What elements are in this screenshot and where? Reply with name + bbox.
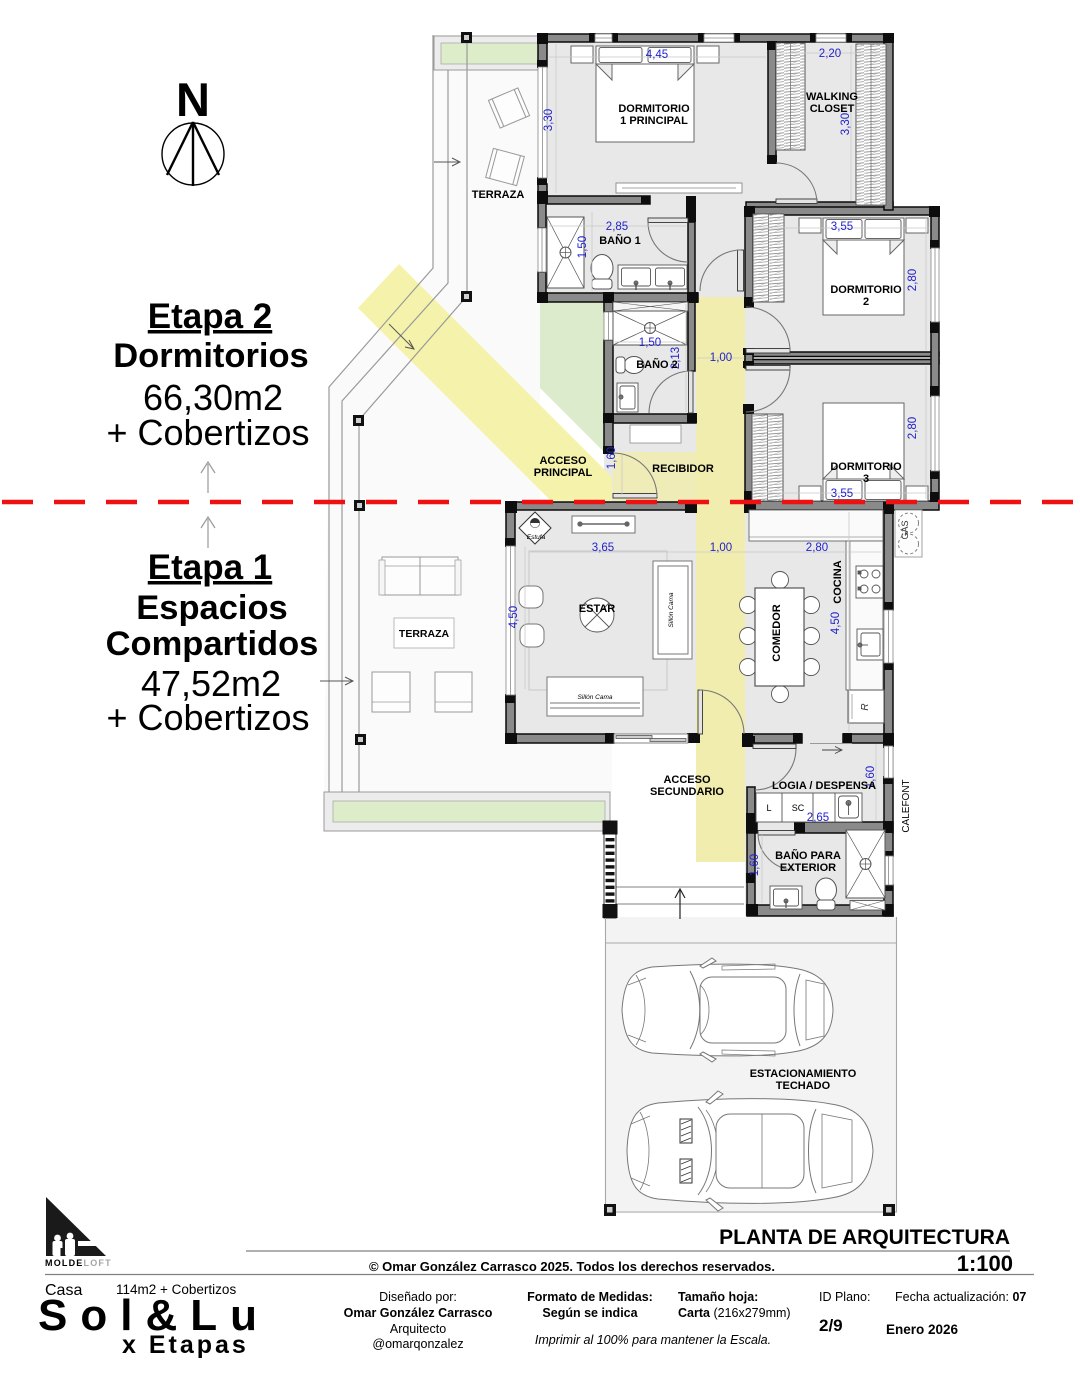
svg-text:1 PRINCIPAL: 1 PRINCIPAL <box>620 115 688 127</box>
svg-text:PRINCIPAL: PRINCIPAL <box>534 467 593 479</box>
svg-text:BAÑO 2: BAÑO 2 <box>636 358 678 371</box>
svg-text:SC: SC <box>792 803 805 813</box>
svg-text:Imprimir al 100% para mantener: Imprimir al 100% para mantener la Escala… <box>535 1333 771 1347</box>
svg-text:1,00: 1,00 <box>710 542 732 554</box>
svg-text:Omar González Carrasco: Omar González Carrasco <box>344 1306 493 1320</box>
svg-text:2,80: 2,80 <box>907 417 919 439</box>
svg-text:ESTAR: ESTAR <box>579 603 616 615</box>
svg-text:Etapa 1: Etapa 1 <box>148 548 273 587</box>
svg-text:R: R <box>860 703 871 710</box>
svg-text:2,65: 2,65 <box>807 812 829 824</box>
svg-text:TERRAZA: TERRAZA <box>472 189 525 201</box>
svg-text:COMEDOR: COMEDOR <box>771 604 783 662</box>
svg-text:1,50: 1,50 <box>577 236 589 258</box>
svg-text:3,30: 3,30 <box>543 109 555 131</box>
svg-text:1,60: 1,60 <box>749 854 761 876</box>
svg-text:Espacios: Espacios <box>136 589 288 627</box>
svg-text:1:100: 1:100 <box>957 1251 1013 1276</box>
svg-text:Formato de Medidas:: Formato de Medidas: <box>527 1290 653 1304</box>
svg-text:2,80: 2,80 <box>907 269 919 291</box>
svg-text:3,55: 3,55 <box>831 221 853 233</box>
svg-text:RECIBIDOR: RECIBIDOR <box>652 463 714 475</box>
svg-text:Carta (216x279mm): Carta (216x279mm) <box>678 1306 791 1320</box>
svg-text:DORMITORIO: DORMITORIO <box>830 461 902 473</box>
svg-text:PLANTA DE ARQUITECTURA: PLANTA DE ARQUITECTURA <box>719 1226 1010 1249</box>
svg-text:GAS: GAS <box>900 520 910 539</box>
svg-text:x Etapas: x Etapas <box>122 1331 249 1359</box>
svg-text:ACCESO: ACCESO <box>539 455 587 467</box>
svg-text:CALEFONT: CALEFONT <box>901 779 912 832</box>
svg-text:2,80: 2,80 <box>806 542 828 554</box>
svg-text:Arquitecto: Arquitecto <box>390 1322 446 1336</box>
svg-text:Estufa: Estufa <box>527 534 546 541</box>
svg-text:Sillón Cama: Sillón Cama <box>668 592 675 627</box>
svg-text:4,45: 4,45 <box>646 49 668 61</box>
svg-text:4,50: 4,50 <box>830 612 842 634</box>
svg-text:2,20: 2,20 <box>819 48 841 60</box>
svg-text:BAÑO 1: BAÑO 1 <box>599 234 641 247</box>
svg-text:@omarqonzalez: @omarqonzalez <box>372 1337 463 1351</box>
svg-text:BAÑO PARA: BAÑO PARA <box>775 849 841 862</box>
svg-text:Fecha actualización: 07: Fecha actualización: 07 <box>895 1290 1026 1304</box>
svg-text:3,30: 3,30 <box>840 113 852 135</box>
svg-text:LOGIA / DESPENSA: LOGIA / DESPENSA <box>772 780 876 792</box>
svg-text:3,55: 3,55 <box>831 488 853 500</box>
svg-text:DORMITORIO: DORMITORIO <box>618 103 690 115</box>
svg-text:CLOSET: CLOSET <box>810 103 855 115</box>
svg-text:TECHADO: TECHADO <box>776 1080 831 1092</box>
svg-text:1,60: 1,60 <box>606 447 618 469</box>
svg-text:Sillón Cama: Sillón Cama <box>577 694 612 701</box>
svg-text:DORMITORIO: DORMITORIO <box>830 284 902 296</box>
svg-text:L: L <box>766 803 771 813</box>
svg-text:ACCESO: ACCESO <box>663 774 711 786</box>
svg-text:Enero 2026: Enero 2026 <box>886 1322 959 1337</box>
svg-text:ID Plano:: ID Plano: <box>819 1290 870 1304</box>
svg-text:3,65: 3,65 <box>592 542 614 554</box>
svg-text:TERRAZA: TERRAZA <box>399 628 450 640</box>
svg-text:+ Cobertizos: + Cobertizos <box>106 697 309 738</box>
svg-text:2/9: 2/9 <box>819 1316 843 1335</box>
svg-text:Tamaño hoja:: Tamaño hoja: <box>678 1290 758 1304</box>
svg-text:Dormitorios: Dormitorios <box>113 337 309 375</box>
svg-text:2: 2 <box>863 296 869 308</box>
svg-text:Etapa 2: Etapa 2 <box>148 297 273 336</box>
svg-text:+ Cobertizos: + Cobertizos <box>106 412 309 453</box>
svg-text:N: N <box>176 73 210 126</box>
svg-text:MOLDELOFT: MOLDELOFT <box>45 1258 112 1268</box>
svg-text:© Omar González Carrasco 2025.: © Omar González Carrasco 2025. Todos los… <box>369 1259 775 1274</box>
svg-text:Compartidos: Compartidos <box>106 625 319 663</box>
svg-text:Diseñado por:: Diseñado por: <box>379 1290 457 1304</box>
svg-text:4,50: 4,50 <box>508 606 520 628</box>
svg-text:1,00: 1,00 <box>710 352 732 364</box>
svg-text:COCINA: COCINA <box>832 560 844 603</box>
svg-text:EXTERIOR: EXTERIOR <box>780 862 836 874</box>
svg-text:WALKING: WALKING <box>806 91 858 103</box>
svg-text:ESTACIONAMIENTO: ESTACIONAMIENTO <box>750 1068 857 1080</box>
svg-text:2,85: 2,85 <box>606 221 628 233</box>
svg-text:Según se indica: Según se indica <box>542 1306 638 1320</box>
svg-text:3: 3 <box>863 473 869 485</box>
svg-text:1,50: 1,50 <box>639 337 661 349</box>
svg-text:SECUNDARIO: SECUNDARIO <box>650 786 724 798</box>
